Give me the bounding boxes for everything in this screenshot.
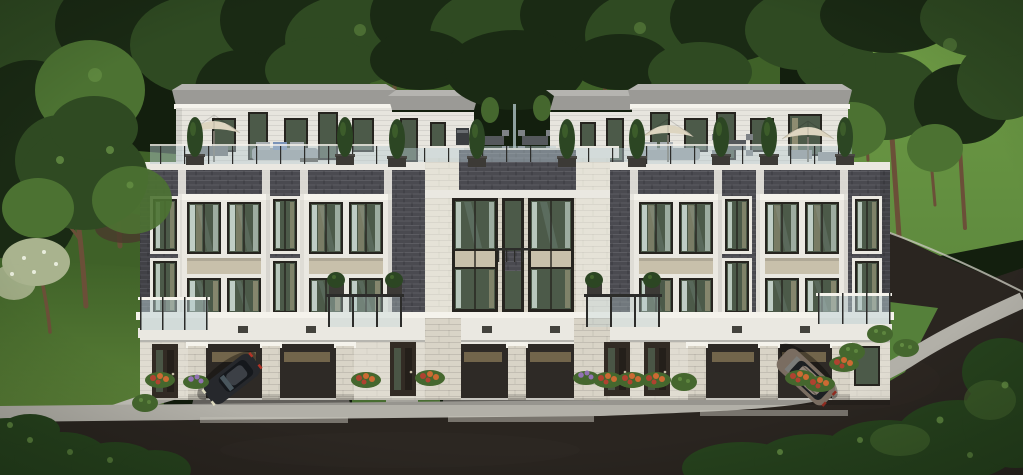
vignette-overlay bbox=[0, 0, 1023, 475]
rendering-viewport: Three-storey modern townhouses with dark… bbox=[0, 0, 1023, 475]
rendering-canvas bbox=[0, 0, 1023, 475]
